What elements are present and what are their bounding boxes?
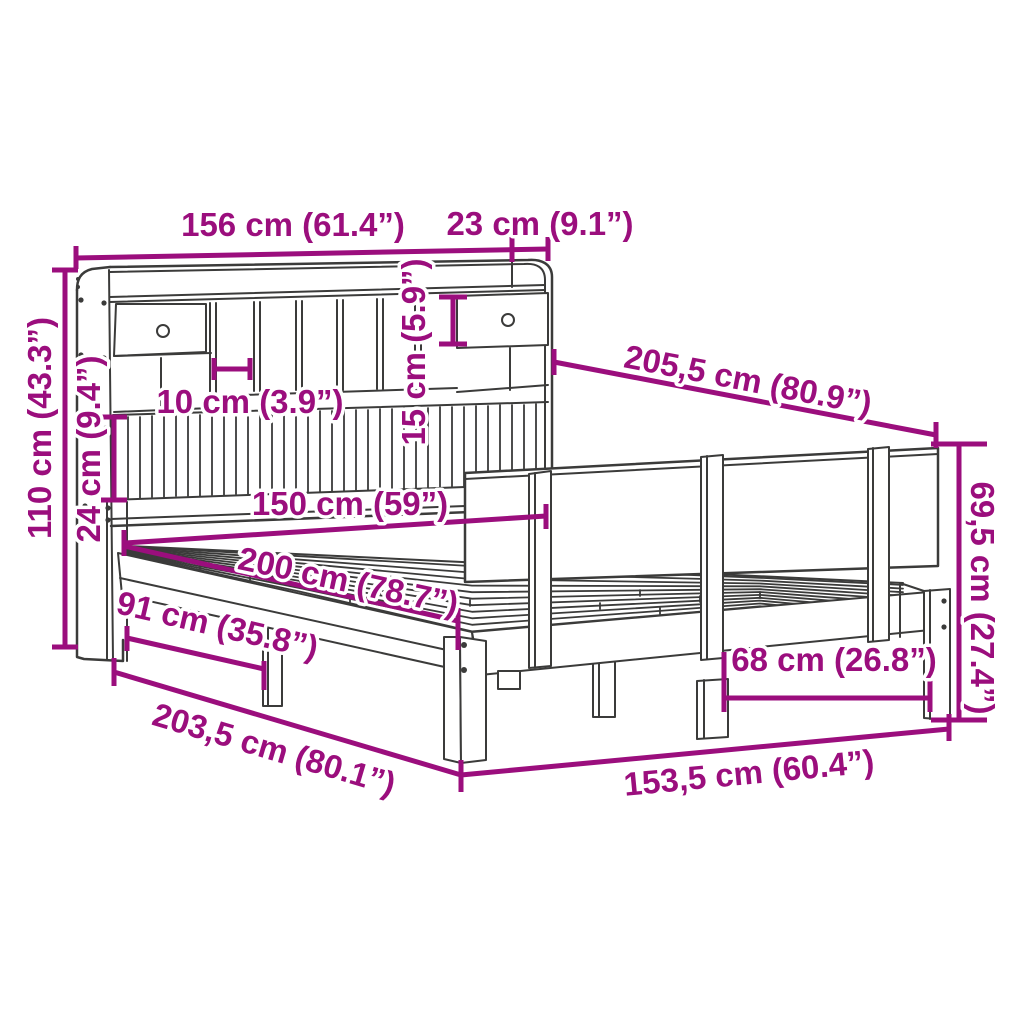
svg-text:150 cm (59”): 150 cm (59”) [252, 485, 448, 522]
svg-text:68 cm (26.8”): 68 cm (26.8”) [731, 641, 936, 678]
svg-text:10 cm (3.9”): 10 cm (3.9”) [156, 383, 343, 420]
svg-text:15 cm (5.9”): 15 cm (5.9”) [395, 258, 432, 445]
svg-text:69,5 cm (27.4”): 69,5 cm (27.4”) [964, 482, 1001, 715]
svg-text:156 cm (61.4”): 156 cm (61.4”) [181, 206, 405, 243]
svg-text:24 cm (9.4”): 24 cm (9.4”) [70, 355, 107, 542]
svg-text:23 cm (9.1”): 23 cm (9.1”) [446, 205, 633, 242]
svg-text:110 cm (43.3”): 110 cm (43.3”) [21, 317, 58, 539]
